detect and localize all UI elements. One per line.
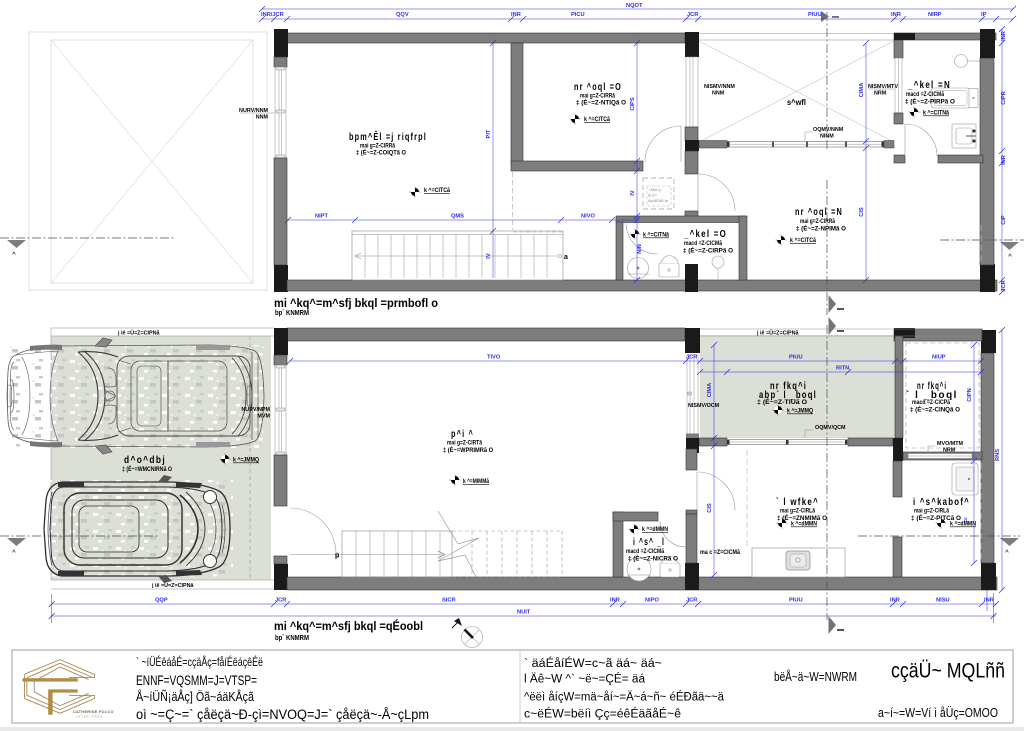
svg-text:k ^=CITCã: k ^=CITCã [424, 187, 450, 194]
svg-text:‡ (É~=Z-NPIMã O: ‡ (É~=Z-NPIMã O [796, 225, 846, 233]
svg-text:CIPS: CIPS [630, 97, 636, 110]
svg-text:k ^=JMMQ: k ^=JMMQ [233, 457, 259, 464]
svg-text:` l wfke^: ` l wfke^ [776, 497, 819, 508]
svg-text:NIN: NIN [637, 244, 643, 254]
svg-text:CIP: CIP [1001, 215, 1007, 225]
svg-text:IP: IP [981, 12, 987, 18]
svg-text:CIS: CIS [859, 207, 865, 217]
svg-text:k ^=JMMQ: k ^=JMMQ [787, 408, 813, 415]
svg-text:RNS: RNS [995, 449, 1001, 461]
svg-text:NNM: NNM [256, 115, 269, 121]
svg-text:k ^=CITNã: k ^=CITNã [643, 232, 669, 239]
svg-text:OQMV/NNM: OQMV/NNM [813, 127, 844, 133]
svg-text:‡ (É~=Z-NICRã O: ‡ (É~=Z-NICRã O [628, 555, 678, 563]
svg-text:nr ^oql =O: nr ^oql =O [574, 82, 622, 93]
svg-text:mai g=Z-CIRRã: mai g=Z-CIRRã [800, 218, 835, 225]
svg-text:JCR: JCR [687, 12, 698, 18]
svg-text:CATHERINE FOLCO: CATHERINE FOLCO [73, 710, 114, 714]
svg-text:IV: IV [630, 190, 636, 196]
svg-text:macd =Z-CICMã: macd =Z-CICMã [626, 548, 664, 555]
svg-text:NIPO: NIPO [645, 598, 659, 604]
svg-text:PIT: PIT [486, 129, 492, 138]
svg-text:INR: INR [511, 12, 521, 18]
svg-text:NISU: NISU [936, 598, 950, 604]
svg-text:j ìê =Ü=Z=CIPNã: j ìê =Ü=Z=CIPNã [756, 330, 799, 337]
svg-text:MVO/MTM: MVO/MTM [937, 441, 964, 447]
svg-text:mai g=Z-CIRTã: mai g=Z-CIRTã [447, 440, 482, 447]
svg-text:i ^s^kabof^: i ^s^kabof^ [913, 497, 970, 508]
svg-text:‡ (É~=Z-PIRPã O: ‡ (É~=Z-PIRPã O [905, 98, 955, 106]
svg-text:NIVO: NIVO [581, 214, 595, 220]
svg-text:mai g=Z-CIRLã: mai g=Z-CIRLã [780, 508, 815, 515]
svg-text:‡ (É~=Z-CIRPã O: ‡ (É~=Z-CIRPã O [683, 247, 733, 255]
svg-text:macd =Z-CICMã: macd =Z-CICMã [684, 240, 722, 247]
svg-text:^ëëì åíçW=mä~åí~=Ä~á~ñ~ éÉÐãä: ^ëëì åíçW=mä~åí~=Ä~á~ñ~ éÉÐãä~~ä [524, 691, 725, 704]
svg-text:CIPN: CIPN [967, 388, 973, 402]
svg-text:INR: INR [610, 598, 620, 604]
svg-text:mai g=Z-CIRRã: mai g=Z-CIRRã [360, 143, 395, 150]
svg-text:nr ^oql =N: nr ^oql =N [795, 207, 843, 218]
svg-text:macd =Z-CICMã: macd =Z-CICMã [906, 91, 944, 98]
svg-text:j ìê =Ü=Z=CIPNã: j ìê =Ü=Z=CIPNã [117, 330, 160, 337]
svg-text:SICR: SICR [442, 598, 456, 604]
svg-text:NIRP: NIRP [928, 12, 942, 18]
svg-text:QQV: QQV [396, 12, 409, 18]
svg-text:cçäÜ~ MQLññ: cçäÜ~ MQLññ [891, 659, 1005, 683]
svg-text:mai g=Z-CIRLã: mai g=Z-CIRLã [914, 508, 949, 515]
svg-text:` ~íÜÉêáåÉ=cçäÅç=fåíÉêáçêÉë: ` ~íÜÉêáåÉ=cçäÅç=fåíÉêáçêÉë [136, 654, 263, 669]
svg-text:CIS: CIS [707, 503, 713, 513]
svg-text:CIPR: CIPR [1001, 91, 1007, 105]
svg-text:INTERIORES: INTERIORES [76, 715, 103, 719]
svg-text:NRM: NRM [943, 448, 956, 454]
svg-text:NIPT: NIPT [315, 214, 328, 220]
svg-text:oì ~=Ç~=` çåëçä~Ð-çì=NVOQ=J=`: oì ~=Ç~=` çåëçä~Ð-çì=NVOQ=J=` çåëçä~-Å~ç… [136, 707, 429, 722]
svg-text:k ^=dMMN: k ^=dMMN [791, 521, 817, 528]
svg-text:INR/JCR: INR/JCR [261, 12, 284, 18]
svg-text:macd =Z-CICPã: macd =Z-CICPã [912, 399, 950, 406]
svg-text:i ^s^ _l: i ^s^ _l [633, 537, 665, 548]
svg-text:NRM: NRM [874, 91, 887, 97]
svg-text:k ^=MIMMã: k ^=MIMMã [463, 478, 489, 485]
svg-text:NISMV/NNM: NISMV/NNM [704, 84, 735, 90]
svg-text:k ^=dMMN: k ^=dMMN [950, 521, 976, 528]
svg-text:Å~íÜÑ¡äÅç] Öã~áäKÅçã: Å~íÜÑ¡äÅç] Öã~áäKÅçã [136, 689, 255, 704]
svg-text:MVM: MVM [257, 414, 270, 420]
svg-text:‡ (É~=Z-CINQã O: ‡ (É~=Z-CINQã O [910, 406, 960, 414]
svg-text:s^wfl: s^wfl [787, 98, 806, 107]
svg-text:NISMV/OCM: NISMV/OCM [688, 403, 720, 409]
svg-text:QQP: QQP [155, 598, 168, 604]
svg-text:JCR: JCR [686, 355, 697, 361]
svg-text:INR: INR [984, 598, 994, 604]
svg-text:mai g=Z-CIRRã: mai g=Z-CIRRã [580, 93, 615, 100]
svg-text:mi ^kq^=m^sfj bkql =qÉoobl: mi ^kq^=m^sfj bkql =qÉoobl [274, 620, 423, 633]
svg-text:bp` KNMRM: bp` KNMRM [275, 310, 309, 317]
svg-text:^: ^ [12, 250, 16, 258]
svg-text:PIUU: PIUU [789, 598, 803, 604]
svg-text:JCR: JCR [1001, 280, 1007, 291]
svg-text:mi ^kq^=m^sfj bkql =prmbofl o: mi ^kq^=m^sfj bkql =prmbofl o [274, 298, 438, 310]
svg-text:CIMA: CIMA [707, 383, 713, 398]
svg-text:k ^=dMMN: k ^=dMMN [642, 526, 668, 533]
svg-text:TIVO: TIVO [487, 355, 501, 361]
svg-text:a~í~=W=Ví ì åÜç=OMOO: a~í~=W=Ví ì åÜç=OMOO [878, 706, 998, 720]
svg-text:INR: INR [1001, 31, 1007, 41]
svg-text:PIUU: PIUU [808, 12, 822, 18]
svg-text:är É=: är É= [648, 193, 658, 198]
svg-text:NIUP: NIUP [932, 355, 946, 361]
svg-text:JCR: JCR [275, 598, 286, 604]
svg-text:IV: IV [486, 253, 492, 259]
svg-text:bëÅ~ä~W=NWRM: bëÅ~ä~W=NWRM [774, 669, 857, 684]
svg-text:‡ (É~=WPRIMRã O: ‡ (É~=WPRIMRã O [443, 446, 493, 454]
svg-text:JCR: JCR [686, 598, 697, 604]
svg-text:bp` KNMRM: bp` KNMRM [275, 635, 309, 642]
svg-text:^: ^ [1008, 252, 1012, 260]
svg-text:QMS: QMS [451, 214, 464, 220]
svg-text:p^i ^: p^i ^ [451, 429, 474, 440]
svg-text:RITN: RITN [836, 366, 849, 372]
svg-text:NURV/NPM: NURV/NPM [241, 407, 270, 413]
svg-text:Àç/NÉãÛ är: Àç/NÉãÛ är [648, 198, 669, 203]
svg-text:NNM: NNM [712, 91, 725, 97]
svg-text:‡ (É~=Z-TIUã O: ‡ (É~=Z-TIUã O [757, 398, 807, 406]
svg-text:c~ëÉW=bëíì Çç=éêÉäãåÉ~ê: c~ëÉW=bëíì Çç=éêÉäãåÉ~ê [524, 708, 681, 721]
svg-text:‡ (É~=Z-COIQTã O: ‡ (É~=Z-COIQTã O [356, 149, 406, 157]
svg-text:NINM: NINM [820, 134, 834, 140]
svg-text:INR: INR [891, 12, 901, 18]
svg-text:‡ (É~=Z-NTIQã O: ‡ (É~=Z-NTIQã O [576, 99, 626, 107]
svg-text:ma c =Z=CICMã: ma c =Z=CICMã [700, 549, 740, 556]
svg-text:l Äê~W ^` ~ë~=ÇÉ= äá: l Äê~W ^` ~ë~=ÇÉ= äá [524, 673, 646, 686]
svg-text:NQOT: NQOT [626, 3, 643, 9]
svg-text:` äáÉåíÉW=c~ã äá~ äá~: ` äáÉåíÉW=c~ã äá~ äá~ [524, 657, 662, 670]
svg-text:d^o^dbj: d^o^dbj [124, 455, 166, 466]
svg-text:INR: INR [1001, 155, 1007, 165]
svg-text:k ^=CITNã: k ^=CITNã [923, 110, 949, 117]
svg-text:j ìê =Ü=Z=CIPNã: j ìê =Ü=Z=CIPNã [151, 582, 194, 589]
svg-text:NUIT: NUIT [517, 610, 531, 616]
svg-text:^: ^ [1005, 548, 1009, 556]
svg-text:INR: INR [890, 598, 900, 604]
svg-text:a: a [564, 254, 568, 261]
svg-text:OQMV/QCM: OQMV/QCM [815, 425, 846, 431]
svg-text:CIMA: CIMA [859, 83, 865, 98]
svg-text:_^kel =N: _^kel =N [907, 80, 951, 91]
svg-text:k ^=CITCã: k ^=CITCã [790, 237, 816, 244]
svg-text:PIUU: PIUU [789, 355, 803, 361]
svg-text:‡ (É~=WMCNIRNã O: ‡ (É~=WMCNIRNã O [122, 465, 172, 473]
svg-text:_^kel =O: _^kel =O [683, 229, 727, 240]
svg-text:ENNF=VQSMM=J=VTSP=: ENNF=VQSMM=J=VTSP= [136, 672, 257, 688]
svg-text:^: ^ [12, 548, 16, 556]
svg-text:PICU: PICU [571, 12, 585, 18]
svg-text:bpm^Êl =j riqfrpl: bpm^Êl =j riqfrpl [349, 130, 427, 143]
svg-text:k ^=CITCã: k ^=CITCã [584, 116, 610, 123]
svg-text:p: p [335, 553, 339, 560]
svg-text:~Aēä´ç=: ~Aēä´ç= [648, 188, 663, 192]
